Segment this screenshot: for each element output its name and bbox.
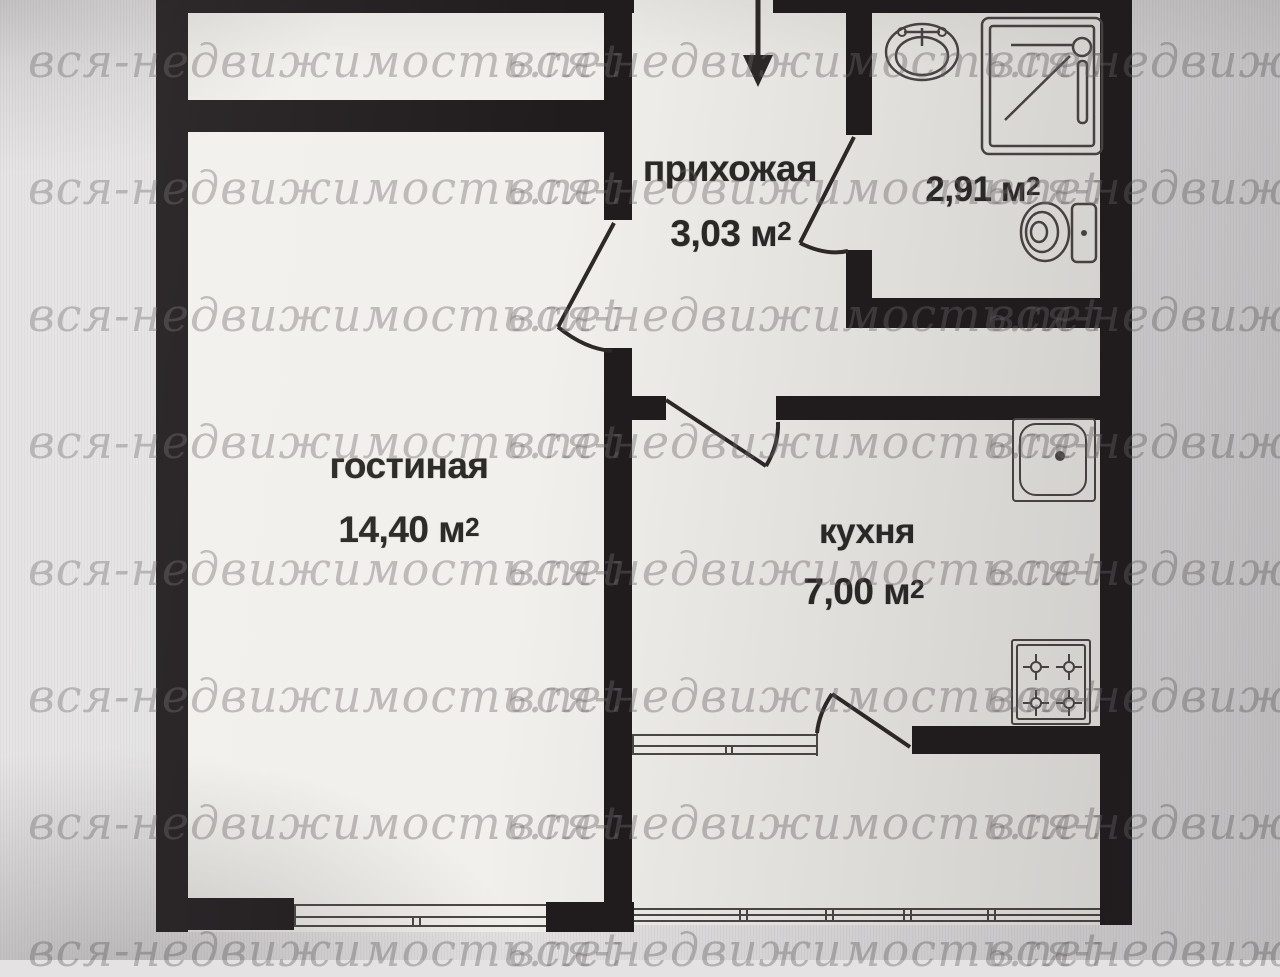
room-area-bathroom: 2,91 м2 (925, 170, 1040, 210)
room-area-living: 14,40 м2 (338, 509, 479, 551)
wall-living-top (156, 100, 632, 132)
wall-bath-bottom (846, 298, 1132, 328)
room-label-hallway: прихожая (643, 148, 817, 190)
window-living (294, 900, 546, 930)
window-kitchen (632, 730, 818, 757)
wall-right-outer (1100, 0, 1132, 925)
wall-kitchen-top-left (604, 396, 666, 420)
wall-left-outer (156, 0, 188, 932)
wall-kitchen-balcony (912, 726, 1132, 754)
room-label-living: гостиная (330, 445, 489, 487)
room-area-kitchen: 7,00 м2 (803, 571, 924, 613)
room-area-hallway: 3,03 м2 (670, 213, 791, 255)
wall-living-bottom-left (156, 898, 294, 930)
wall-living-bottom-right (546, 902, 634, 932)
floor-plan-photo: прихожая 3,03 м2 2,91 м2 гостиная 14,40 … (0, 0, 1280, 960)
wall-divider-lower (604, 348, 632, 930)
wall-top-thin (156, 0, 634, 13)
wall-bath-left-upper (846, 0, 872, 135)
wall-divider-upper (604, 0, 632, 220)
wall-bath-top (846, 0, 1132, 13)
wall-kitchen-top-right (776, 396, 1132, 420)
balcony-glazing (634, 905, 1100, 925)
room-label-kitchen: кухня (819, 512, 915, 552)
floor-plan-svg (0, 0, 1280, 960)
floor-area (156, 0, 1132, 932)
